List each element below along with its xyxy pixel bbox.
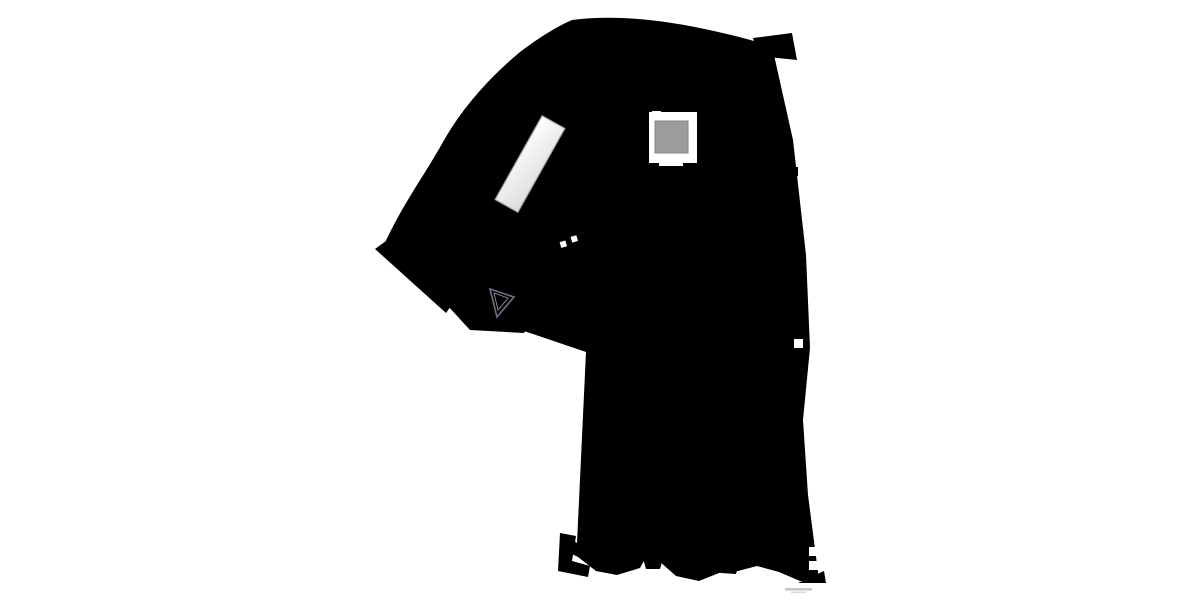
watermark-text	[785, 588, 812, 593]
wall-pilaster-1	[788, 167, 798, 176]
floorplan-page: { "document": { "kind": "architectural-f…	[0, 0, 1200, 600]
floorplan-canvas	[0, 0, 1200, 600]
wall-pilaster-2	[790, 233, 800, 242]
elevator-door-gap	[659, 158, 683, 166]
elevator	[649, 111, 697, 166]
exterior-wall-corner-top-right	[753, 33, 797, 60]
elevator-cab	[655, 121, 688, 153]
elevator-notch	[652, 111, 661, 117]
